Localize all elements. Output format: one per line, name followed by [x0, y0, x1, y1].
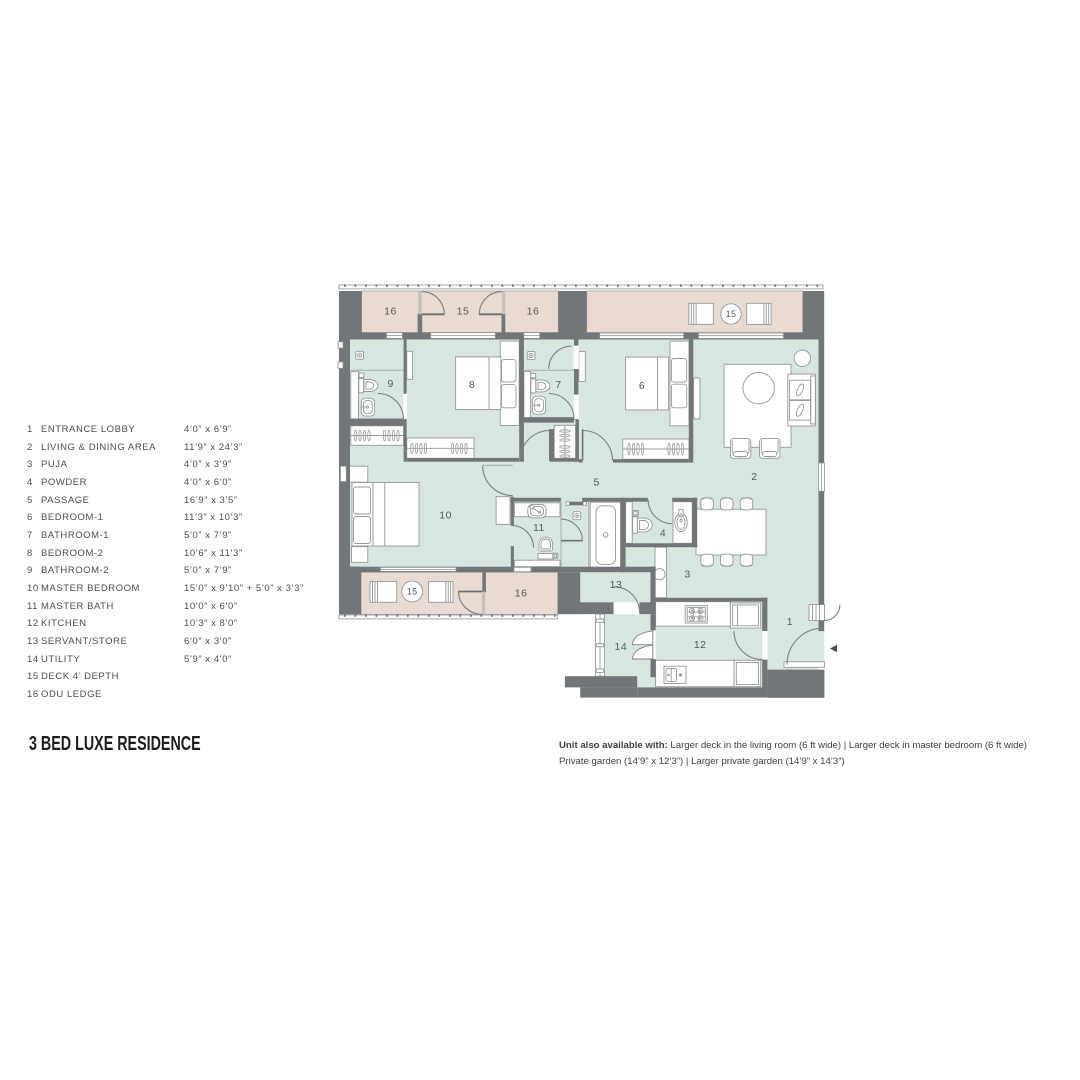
svg-text:15: 15	[407, 587, 418, 597]
svg-text:10: 10	[439, 510, 452, 522]
svg-text:11: 11	[533, 522, 545, 534]
svg-text:9: 9	[388, 378, 394, 390]
svg-text:15: 15	[457, 306, 470, 318]
svg-text:14: 14	[615, 641, 628, 653]
svg-text:6: 6	[639, 380, 645, 392]
svg-text:7: 7	[555, 379, 561, 391]
svg-text:1: 1	[787, 616, 793, 628]
svg-text:5: 5	[594, 477, 600, 489]
svg-text:15: 15	[726, 309, 737, 319]
svg-text:2: 2	[751, 471, 757, 483]
svg-text:16: 16	[527, 306, 540, 318]
svg-text:13: 13	[610, 579, 623, 591]
svg-text:4: 4	[660, 528, 666, 540]
svg-text:3: 3	[684, 569, 690, 581]
svg-text:8: 8	[469, 379, 475, 391]
svg-text:16: 16	[384, 306, 397, 318]
svg-text:16: 16	[515, 588, 528, 600]
svg-text:12: 12	[694, 639, 707, 651]
